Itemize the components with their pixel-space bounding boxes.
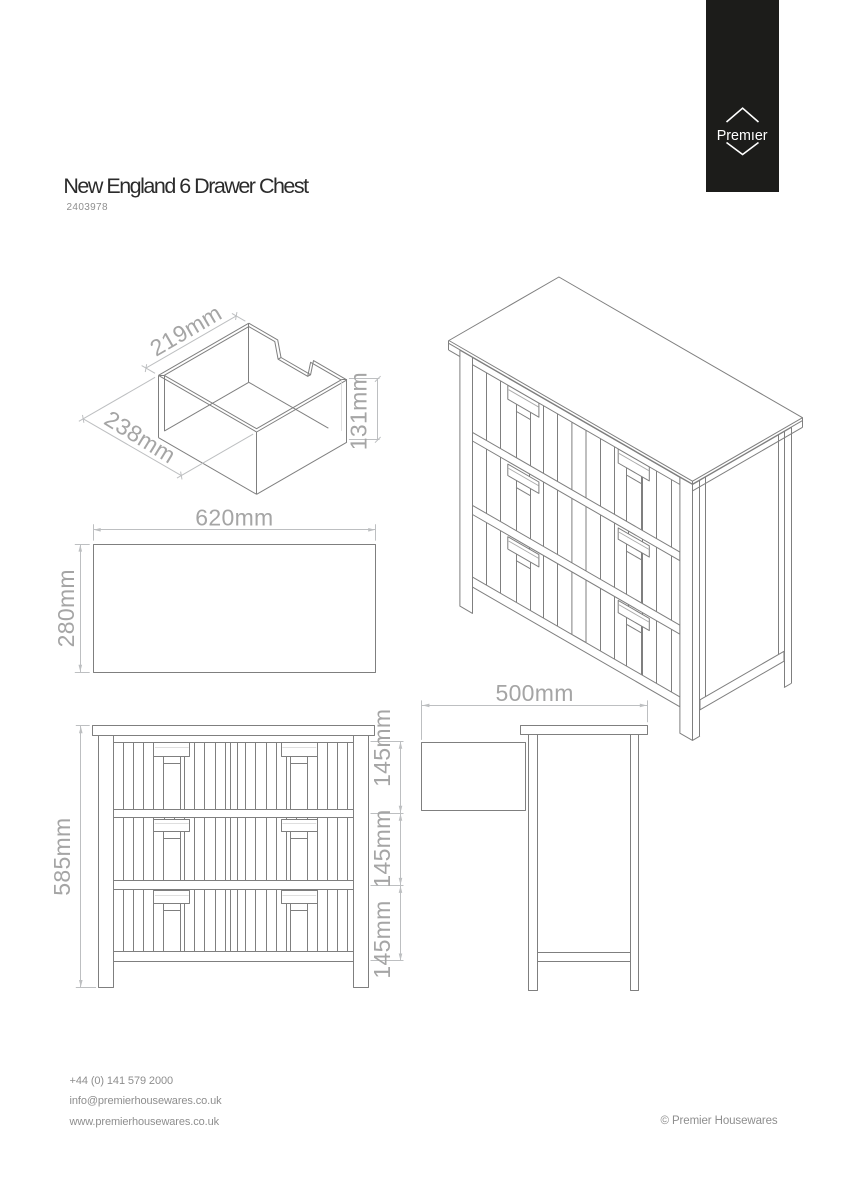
svg-text:500mm: 500mm xyxy=(495,680,573,706)
svg-text:238mm: 238mm xyxy=(100,405,180,468)
svg-text:145mm: 145mm xyxy=(369,709,395,787)
svg-text:620mm: 620mm xyxy=(195,504,273,530)
svg-text:145mm: 145mm xyxy=(369,809,395,887)
svg-text:585mm: 585mm xyxy=(49,817,75,895)
svg-text:145mm: 145mm xyxy=(369,900,395,978)
svg-text:131mm: 131mm xyxy=(346,372,372,450)
svg-text:280mm: 280mm xyxy=(53,569,79,647)
svg-text:219mm: 219mm xyxy=(145,299,226,361)
